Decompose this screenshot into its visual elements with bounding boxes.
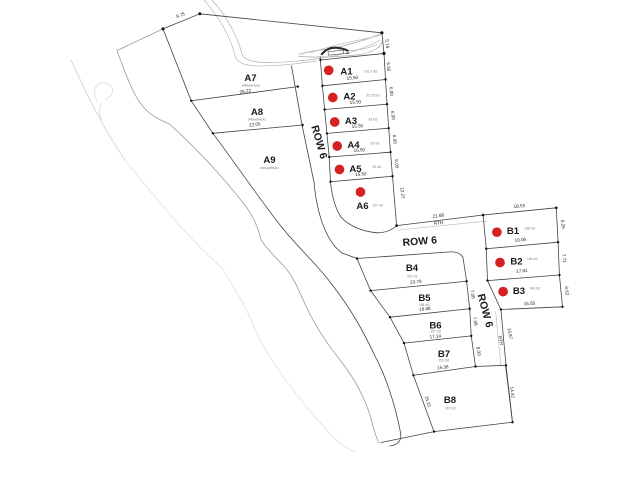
svg-text:RTH: RTH	[434, 220, 444, 226]
svg-text:17.81: 17.81	[516, 268, 528, 274]
svg-text:6.00: 6.00	[394, 159, 400, 169]
svg-text:8.62: 8.62	[564, 286, 570, 296]
svg-text:B1: B1	[507, 226, 520, 237]
svg-text:A8: A8	[251, 107, 264, 118]
svg-text:153 m2: 153 m2	[439, 359, 450, 363]
svg-text:157 m2: 157 m2	[373, 204, 384, 208]
svg-text:7.71: 7.71	[561, 254, 567, 264]
svg-text:140 m2: 140 m2	[530, 287, 541, 291]
svg-text:158 m2: 158 m2	[419, 303, 430, 307]
svg-text:B8: B8	[444, 395, 457, 406]
svg-text:145 m2: 145 m2	[527, 257, 538, 261]
svg-text:157 m2: 157 m2	[431, 330, 442, 334]
svg-text:B3: B3	[513, 286, 525, 297]
svg-text:15.55: 15.55	[524, 301, 536, 307]
svg-text:148 m2: 148 m2	[525, 227, 536, 231]
svg-text:6.00: 6.00	[390, 111, 396, 121]
svg-text:372 m2: 372 m2	[445, 407, 456, 411]
svg-text:A6: A6	[356, 201, 368, 212]
svg-text:93 m2: 93 m2	[369, 118, 378, 122]
svg-text:15.50: 15.50	[351, 123, 363, 129]
svg-text:93 m2: 93 m2	[373, 165, 382, 169]
svg-text:15.50: 15.50	[346, 75, 358, 81]
svg-text:207 m2: 207 m2	[407, 275, 418, 279]
svg-text:92.75 m2: 92.75 m2	[367, 94, 381, 98]
svg-text:15.50: 15.50	[349, 99, 361, 105]
svg-text:93 m2: 93 m2	[371, 142, 380, 146]
svg-text:6.00: 6.00	[392, 135, 398, 145]
svg-text:(PBM/2HUK): (PBM/2HUK)	[242, 84, 260, 88]
svg-text:A7: A7	[244, 73, 256, 84]
svg-text:6.50: 6.50	[386, 62, 392, 72]
svg-text:18.06: 18.06	[514, 237, 526, 243]
svg-text:5.19: 5.19	[384, 39, 390, 49]
svg-text:15.50: 15.50	[355, 171, 367, 177]
svg-text:B2: B2	[510, 257, 522, 268]
svg-text:6.00: 6.00	[388, 87, 394, 97]
svg-text:(SISA/2HUK): (SISA/2HUK)	[260, 166, 278, 170]
svg-text:A9: A9	[263, 155, 275, 166]
svg-text:101.3 m2: 101.3 m2	[364, 70, 378, 74]
svg-text:(PBM/2HUK): (PBM/2HUK)	[248, 118, 266, 122]
svg-text:15.50: 15.50	[353, 147, 365, 153]
svg-text:8.26: 8.26	[560, 220, 566, 230]
svg-text:B4: B4	[406, 263, 419, 274]
